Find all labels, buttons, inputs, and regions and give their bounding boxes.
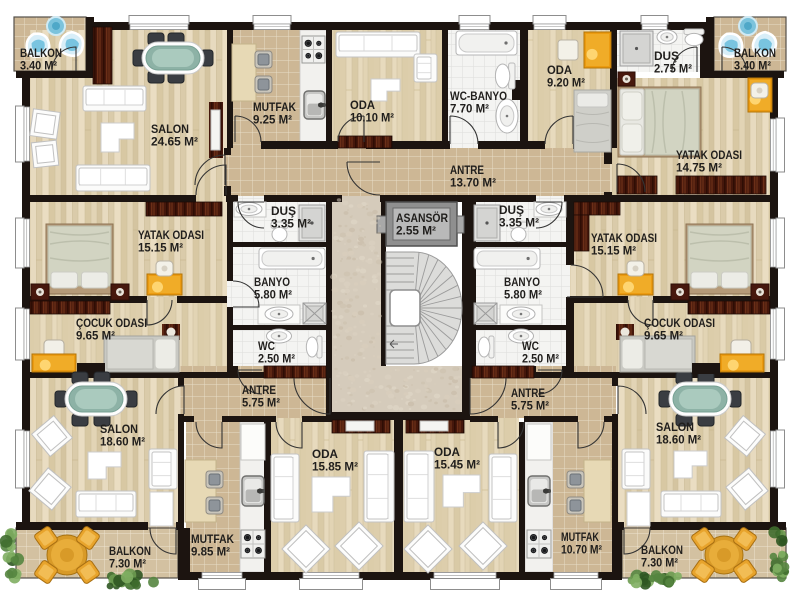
svg-text:18.60 M²: 18.60 M² [100,434,145,448]
svg-text:5.75 M²: 5.75 M² [511,398,549,412]
svg-text:2.75 M²: 2.75 M² [654,61,692,75]
svg-text:10.10 M²: 10.10 M² [350,110,394,124]
svg-text:9.65 M²: 9.65 M² [76,328,115,342]
svg-text:15.15 M²: 15.15 M² [138,240,183,254]
svg-text:3.35 M²: 3.35 M² [271,216,311,230]
svg-text:5.80 M²: 5.80 M² [254,287,292,301]
svg-text:2.50 M²: 2.50 M² [258,351,295,365]
svg-text:ASANSÖR: ASANSÖR [396,212,449,225]
svg-text:9.25 M²: 9.25 M² [253,112,292,126]
svg-text:9.85 M²: 9.85 M² [191,544,230,558]
svg-text:15.85 M²: 15.85 M² [312,459,358,473]
svg-text:7.30 M²: 7.30 M² [641,555,678,569]
svg-text:3.40 M²: 3.40 M² [734,58,771,72]
svg-text:7.30 M²: 7.30 M² [109,556,146,570]
svg-text:2.50 M²: 2.50 M² [522,351,559,365]
svg-text:3.35 M²: 3.35 M² [499,215,539,229]
svg-text:24.65 M²: 24.65 M² [151,134,198,148]
svg-text:5.75 M²: 5.75 M² [242,395,280,409]
svg-text:5.80 M²: 5.80 M² [504,287,542,301]
svg-text:15.15 M²: 15.15 M² [591,243,636,257]
svg-text:18.60 M²: 18.60 M² [656,432,701,446]
svg-text:15.45 M²: 15.45 M² [434,457,480,471]
svg-text:9.20 M²: 9.20 M² [547,75,585,89]
svg-text:14.75 M²: 14.75 M² [676,160,722,174]
svg-text:3.40 M²: 3.40 M² [20,58,57,72]
svg-text:9.65 M²: 9.65 M² [644,328,683,342]
svg-text:10.70 M²: 10.70 M² [561,542,602,556]
svg-text:13.70 M²: 13.70 M² [450,175,496,189]
svg-text:7.70 M²: 7.70 M² [450,101,489,115]
svg-text:2.55 M²: 2.55 M² [396,225,436,237]
